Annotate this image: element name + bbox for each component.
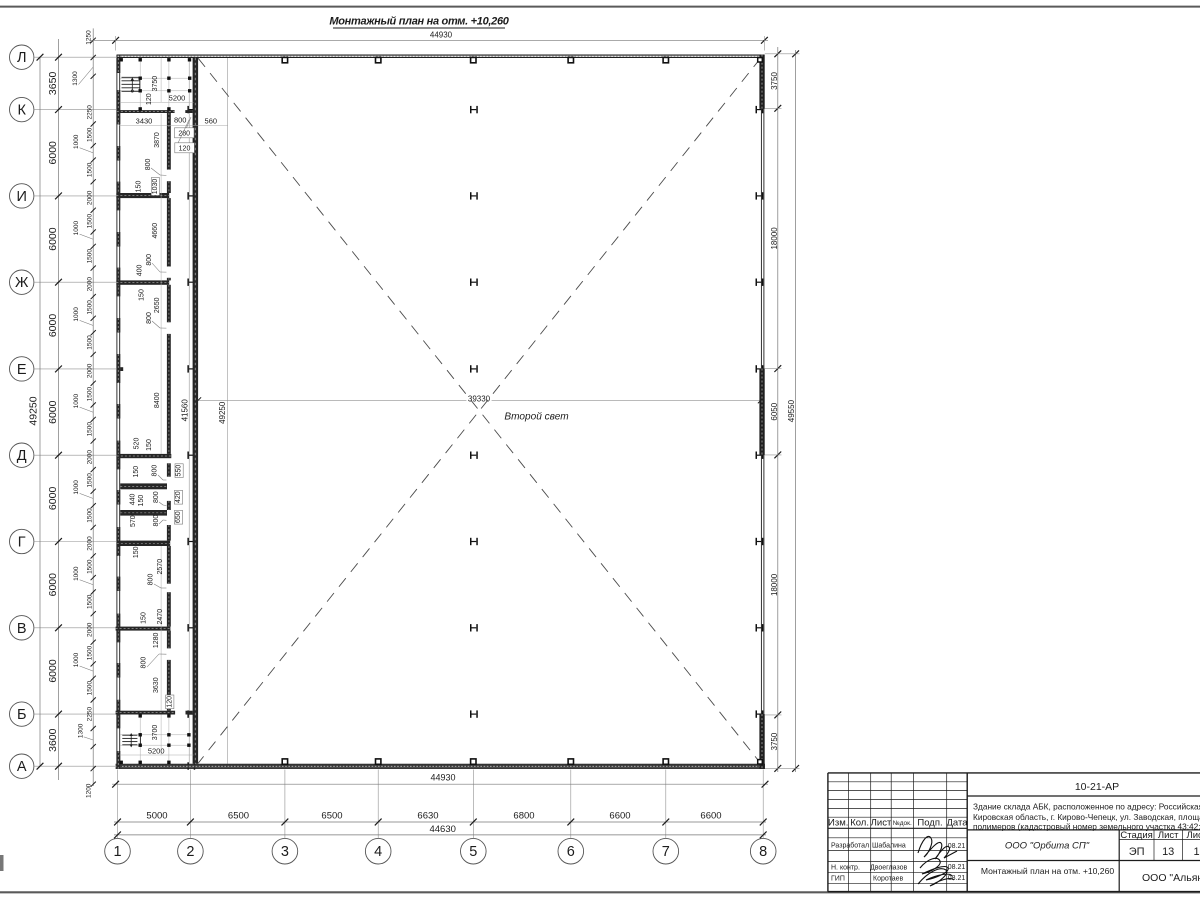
svg-text:6: 6 [567, 844, 575, 860]
svg-text:49250: 49250 [218, 401, 227, 424]
svg-text:6050: 6050 [770, 402, 779, 420]
svg-text:150: 150 [139, 289, 146, 301]
svg-text:13: 13 [1162, 846, 1174, 858]
svg-text:44630: 44630 [429, 824, 455, 835]
svg-text:Н. контр.: Н. контр. [831, 864, 860, 871]
svg-text:К: К [17, 103, 26, 119]
svg-text:2650: 2650 [154, 297, 161, 313]
svg-text:Двоеглазов: Двоеглазов [870, 864, 907, 871]
svg-text:150: 150 [133, 546, 140, 558]
svg-text:150: 150 [141, 612, 148, 624]
svg-text:41560: 41560 [181, 399, 190, 422]
svg-text:800: 800 [146, 312, 153, 324]
svg-text:Шабалина: Шабалина [872, 841, 906, 849]
svg-text:800: 800 [174, 116, 187, 125]
svg-text:7: 7 [662, 844, 670, 860]
svg-text:1: 1 [113, 844, 121, 860]
svg-text:6000: 6000 [47, 659, 59, 683]
svg-text:Л: Л [17, 50, 27, 66]
svg-text:1030: 1030 [152, 179, 159, 195]
svg-text:1000: 1000 [73, 566, 80, 581]
svg-text:Второй свет: Второй свет [504, 411, 568, 422]
svg-text:2250: 2250 [86, 706, 93, 721]
svg-text:1500: 1500 [86, 300, 93, 315]
svg-text:2000: 2000 [86, 450, 93, 465]
svg-text:2570: 2570 [157, 559, 164, 575]
svg-text:Е: Е [17, 362, 27, 378]
svg-text:1300: 1300 [77, 723, 84, 738]
svg-text:4: 4 [374, 844, 382, 860]
svg-text:44930: 44930 [430, 30, 453, 39]
svg-text:1200: 1200 [85, 783, 92, 798]
svg-text:150: 150 [133, 466, 140, 478]
svg-text:10-21-АР: 10-21-АР [1075, 781, 1119, 793]
svg-text:1500: 1500 [86, 386, 93, 401]
svg-text:ООО "Орбита СП": ООО "Орбита СП" [1005, 840, 1090, 851]
svg-text:800: 800 [152, 465, 159, 477]
svg-text:6000: 6000 [47, 487, 59, 511]
svg-text:1250: 1250 [86, 30, 93, 45]
svg-text:6800: 6800 [513, 810, 534, 821]
svg-text:6000: 6000 [47, 400, 59, 424]
svg-text:1000: 1000 [73, 480, 80, 495]
svg-text:ЭП: ЭП [1129, 846, 1145, 858]
svg-text:400: 400 [137, 264, 144, 276]
svg-text:4660: 4660 [152, 223, 159, 239]
svg-text:Дата: Дата [946, 818, 968, 829]
svg-text:1500: 1500 [86, 645, 93, 660]
svg-text:№док.: №док. [893, 820, 912, 827]
svg-text:5200: 5200 [148, 746, 165, 755]
svg-text:5000: 5000 [146, 810, 167, 821]
svg-text:2470: 2470 [157, 609, 164, 625]
svg-text:800: 800 [148, 574, 155, 586]
svg-text:1500: 1500 [86, 127, 93, 142]
svg-text:3750: 3750 [770, 72, 779, 90]
svg-text:2: 2 [186, 844, 194, 860]
svg-text:1280: 1280 [153, 633, 160, 649]
svg-text:ГИП: ГИП [831, 875, 845, 882]
svg-text:150: 150 [146, 439, 153, 451]
svg-text:Коротаев: Коротаев [873, 875, 904, 882]
svg-text:520: 520 [134, 438, 141, 450]
svg-text:Ж: Ж [15, 275, 29, 291]
svg-text:800: 800 [153, 491, 160, 503]
svg-text:1: 1 [1193, 846, 1199, 858]
svg-text:6500: 6500 [228, 810, 249, 821]
svg-text:6000: 6000 [47, 573, 59, 597]
svg-text:3: 3 [281, 844, 289, 860]
svg-text:08.21: 08.21 [948, 864, 966, 871]
svg-text:650: 650 [175, 511, 182, 523]
svg-text:800: 800 [153, 515, 160, 527]
svg-text:6630: 6630 [417, 810, 438, 821]
svg-text:2000: 2000 [86, 536, 93, 551]
svg-text:1000: 1000 [73, 134, 80, 149]
svg-text:08.21: 08.21 [948, 843, 966, 850]
svg-text:Б: Б [17, 707, 27, 723]
svg-text:6600: 6600 [609, 810, 630, 821]
svg-text:Кол.: Кол. [850, 818, 869, 829]
svg-text:49550: 49550 [787, 399, 796, 422]
svg-text:3870: 3870 [154, 132, 161, 148]
svg-text:150: 150 [138, 495, 145, 507]
svg-text:49250: 49250 [28, 396, 40, 425]
svg-text:1500: 1500 [86, 422, 93, 437]
svg-text:800: 800 [146, 254, 153, 266]
svg-text:2000: 2000 [86, 190, 93, 205]
svg-text:5200: 5200 [169, 94, 186, 103]
svg-text:Здание склада АБК, расположенн: Здание склада АБК, расположенное по адре… [973, 802, 1200, 812]
svg-text:6600: 6600 [700, 810, 721, 821]
svg-text:120: 120 [166, 696, 173, 708]
svg-text:И: И [16, 189, 26, 205]
svg-text:2000: 2000 [86, 622, 93, 637]
svg-text:3650: 3650 [47, 72, 59, 96]
svg-text:8: 8 [759, 844, 767, 860]
svg-text:В: В [17, 621, 27, 637]
svg-text:1500: 1500 [86, 213, 93, 228]
svg-text:Разработал: Разработал [831, 841, 869, 849]
svg-text:550: 550 [176, 465, 183, 477]
svg-text:1000: 1000 [73, 220, 80, 235]
svg-text:Лист: Лист [1158, 830, 1179, 841]
svg-text:800: 800 [140, 657, 147, 669]
svg-text:3700: 3700 [152, 725, 159, 741]
svg-text:1500: 1500 [86, 162, 93, 177]
svg-text:8400: 8400 [154, 392, 161, 408]
svg-text:1500: 1500 [86, 680, 93, 695]
svg-text:3750: 3750 [770, 732, 779, 750]
svg-text:Стадия: Стадия [1120, 830, 1152, 841]
svg-text:1500: 1500 [86, 559, 93, 574]
svg-text:Листов: Листов [1187, 830, 1200, 841]
svg-text:Подп.: Подп. [917, 818, 942, 829]
svg-text:120: 120 [146, 93, 153, 105]
svg-text:А: А [17, 759, 27, 775]
svg-text:570: 570 [130, 515, 137, 527]
svg-text:6000: 6000 [47, 314, 59, 338]
svg-text:18000: 18000 [770, 227, 779, 250]
svg-text:5: 5 [469, 844, 477, 860]
svg-text:1500: 1500 [86, 473, 93, 488]
svg-text:2000: 2000 [86, 277, 93, 292]
svg-text:1500: 1500 [86, 594, 93, 609]
svg-text:2250: 2250 [86, 105, 93, 120]
svg-text:1500: 1500 [86, 335, 93, 350]
svg-text:6000: 6000 [47, 227, 59, 251]
svg-text:39330: 39330 [468, 395, 491, 404]
svg-text:3750: 3750 [152, 76, 159, 92]
svg-text:Монтажный план на отм. +10,260: Монтажный план на отм. +10,260 [981, 866, 1114, 876]
svg-text:560: 560 [205, 117, 218, 126]
svg-text:1300: 1300 [72, 71, 79, 86]
svg-text:6000: 6000 [47, 141, 59, 165]
svg-text:Лист: Лист [871, 818, 892, 829]
svg-text:120: 120 [179, 146, 191, 153]
svg-text:800: 800 [145, 158, 152, 170]
svg-text:420: 420 [175, 491, 182, 503]
svg-text:ООО "Альянспроект": ООО "Альянспроект" [1142, 872, 1200, 884]
svg-text:440: 440 [130, 493, 137, 505]
svg-text:1500: 1500 [86, 508, 93, 523]
svg-text:1000: 1000 [73, 307, 80, 322]
svg-text:1000: 1000 [73, 652, 80, 667]
svg-text:3600: 3600 [47, 728, 59, 752]
svg-text:3630: 3630 [153, 677, 160, 693]
svg-text:1000: 1000 [73, 393, 80, 408]
svg-text:150: 150 [136, 181, 143, 193]
svg-text:6500: 6500 [321, 810, 342, 821]
svg-text:2000: 2000 [86, 363, 93, 378]
svg-text:280: 280 [178, 131, 190, 138]
svg-text:18000: 18000 [770, 573, 779, 596]
svg-text:3430: 3430 [136, 117, 153, 126]
svg-text:Д: Д [17, 448, 27, 464]
svg-text:44930: 44930 [430, 773, 455, 783]
svg-text:Г: Г [18, 535, 26, 551]
svg-text:Изм.: Изм. [828, 818, 848, 829]
svg-text:Монтажный план на отм. +10,260: Монтажный план на отм. +10,260 [329, 16, 509, 28]
svg-text:1500: 1500 [86, 249, 93, 264]
